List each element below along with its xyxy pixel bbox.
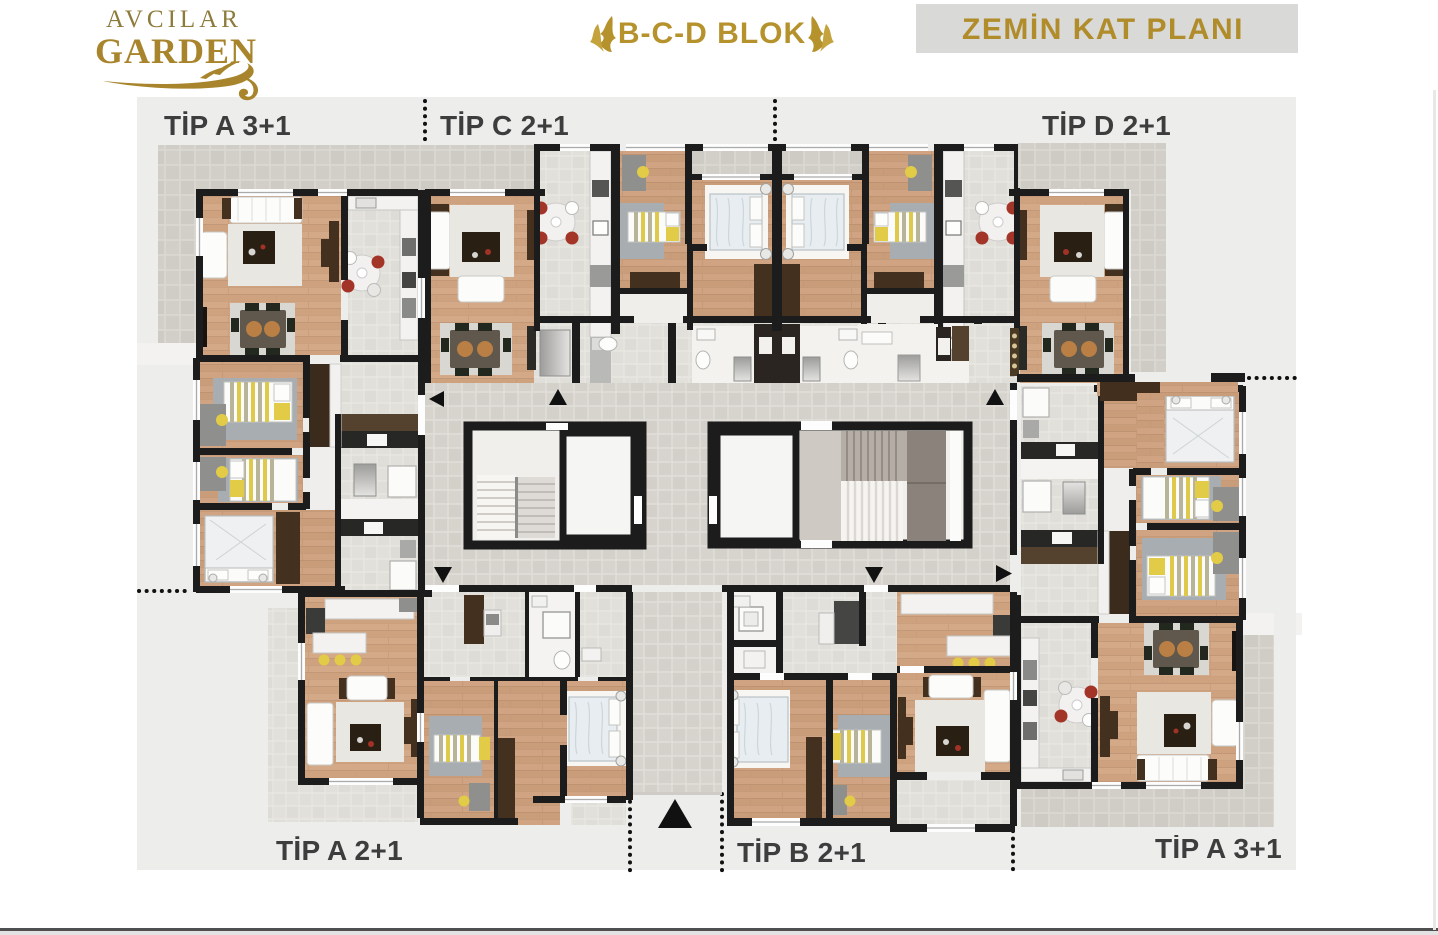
svg-text:TİP A 3+1: TİP A 3+1: [164, 110, 291, 141]
svg-text:TİP D 2+1: TİP D 2+1: [1042, 110, 1171, 141]
svg-text:TİP A 3+1: TİP A 3+1: [1155, 833, 1282, 864]
svg-text:GARDEN: GARDEN: [95, 31, 257, 71]
svg-text:B-C-D BLOK: B-C-D BLOK: [618, 17, 806, 50]
svg-text:AVCILAR: AVCILAR: [106, 6, 242, 33]
svg-text:ZEMİN KAT PLANI: ZEMİN KAT PLANI: [962, 13, 1244, 46]
svg-text:TİP B 2+1: TİP B 2+1: [737, 837, 866, 868]
svg-text:TİP C 2+1: TİP C 2+1: [440, 110, 569, 141]
svg-text:TİP A 2+1: TİP A 2+1: [276, 835, 403, 866]
